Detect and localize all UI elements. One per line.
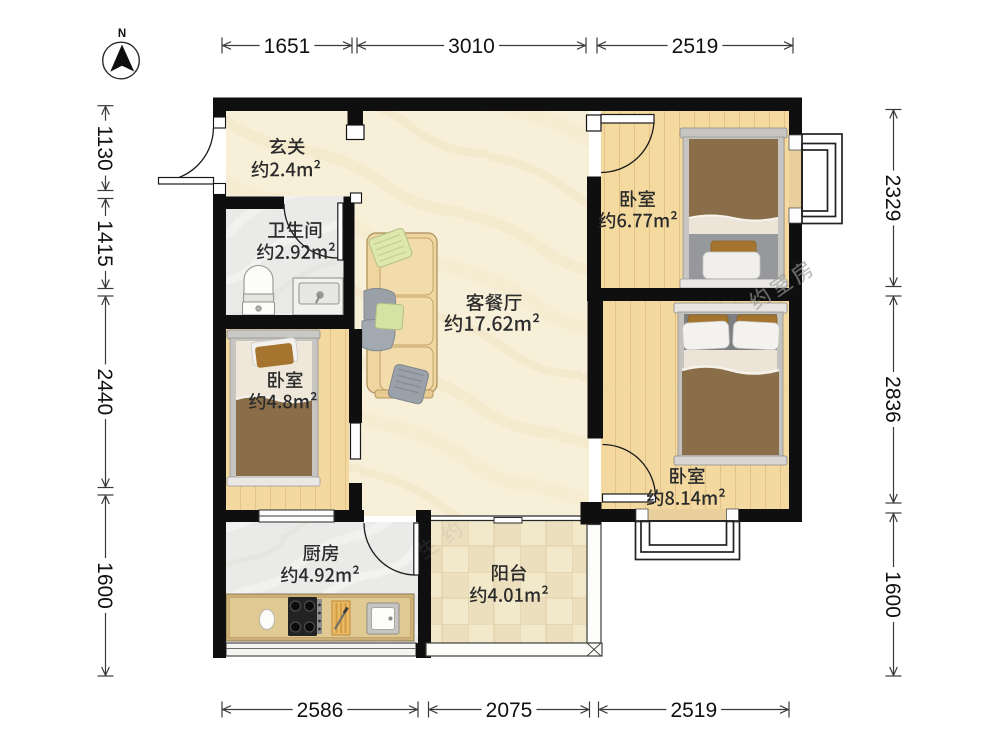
svg-text:2586: 2586: [297, 699, 344, 722]
svg-text:1600: 1600: [881, 571, 904, 618]
svg-text:1600: 1600: [93, 562, 116, 609]
svg-text:1415: 1415: [93, 220, 116, 267]
svg-text:2329: 2329: [881, 175, 904, 222]
svg-text:2836: 2836: [881, 376, 904, 423]
svg-text:2519: 2519: [672, 35, 719, 58]
svg-text:3010: 3010: [448, 35, 495, 58]
svg-text:1651: 1651: [264, 35, 311, 58]
svg-text:2519: 2519: [670, 699, 717, 722]
svg-text:N: N: [118, 28, 126, 40]
svg-text:2440: 2440: [93, 368, 116, 415]
svg-text:2075: 2075: [486, 699, 533, 722]
svg-text:1130: 1130: [93, 126, 116, 171]
